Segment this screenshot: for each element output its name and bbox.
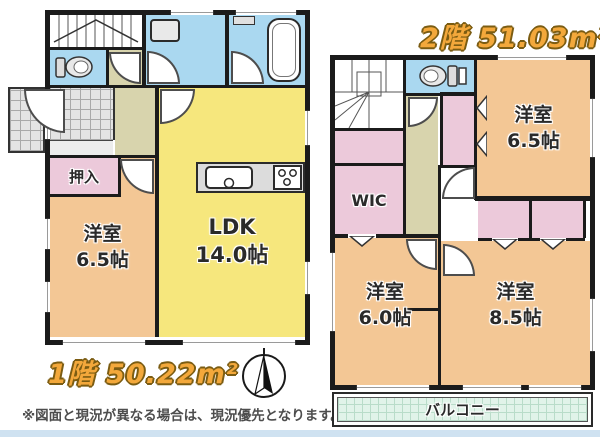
closet-2f-small: [335, 131, 403, 163]
yoshitsu-1f-label: 洋室 6.5帖: [50, 222, 155, 273]
floor2-title: 2階 51.03m²: [420, 16, 600, 55]
window-marker: [182, 340, 296, 345]
yoshitsu-85-label: 洋室 8.5帖: [441, 280, 590, 331]
window-marker: [590, 98, 595, 158]
floorplan-image: 押入 洋室 6.5帖 LDK 14.0帖 1階 50.22m² ※図面と現況が異…: [0, 0, 600, 437]
yoshitsu-60-label: 洋室 6.0帖: [335, 280, 435, 331]
wall-segment: [155, 88, 159, 337]
disclaimer-text: ※図面と現況が異なる場合は、現況優先となります。: [22, 404, 344, 424]
door-chevron: [492, 239, 518, 251]
wall-segment: [50, 47, 142, 50]
window-marker: [590, 298, 595, 352]
balcony-door-marker: [528, 385, 582, 390]
closet-2f-tall: [443, 95, 474, 165]
stairs-treads-icon: [50, 15, 142, 47]
door-chevron: [349, 236, 375, 248]
kitchen-counter: [196, 162, 305, 193]
stairs-treads-icon: [335, 60, 403, 128]
oshiire-label: 押入: [50, 167, 118, 187]
wall-segment: [475, 196, 590, 201]
window-marker: [235, 10, 297, 15]
washing-machine-icon: [149, 18, 183, 46]
window-marker: [45, 281, 50, 313]
ldk-label: LDK 14.0帖: [163, 213, 301, 270]
room-toilet-1f: [50, 50, 106, 85]
room-toilet-2f: [406, 60, 476, 93]
wall-segment: [335, 163, 403, 166]
bottom-border-strip: [0, 430, 600, 437]
bath-counter: [233, 16, 255, 25]
floor1-title: 1階 50.22m²: [48, 352, 239, 391]
yoshitsu-65-2f-label: 洋室 6.5帖: [477, 103, 590, 154]
window-marker: [62, 340, 146, 345]
wic-label: WIC: [335, 190, 403, 212]
wall-segment: [583, 201, 586, 238]
genkan-step: [50, 140, 113, 155]
balcony-door-marker: [462, 385, 522, 390]
door-chevron: [540, 239, 566, 251]
wall-segment: [225, 15, 229, 85]
wall-segment: [440, 92, 477, 95]
room-stairs-2f: [335, 60, 403, 128]
wall-segment: [50, 155, 155, 158]
wall-segment: [50, 194, 121, 197]
hallway-1f: [115, 88, 155, 158]
compass-icon: [237, 346, 291, 400]
toilet-icon: [50, 50, 106, 85]
balcony-label: バルコニー: [332, 400, 593, 420]
wall-segment: [440, 92, 443, 168]
room-stairs-1f: [50, 15, 142, 47]
bathtub-icon: [267, 18, 301, 82]
window-marker: [305, 261, 310, 295]
toilet-icon: [406, 60, 476, 93]
wall-segment: [403, 60, 406, 235]
window-marker: [170, 10, 214, 15]
wall-segment: [335, 128, 403, 131]
wall-segment: [50, 85, 305, 88]
wall-segment: [142, 15, 146, 85]
window-marker: [497, 55, 567, 60]
wall-segment: [529, 201, 532, 238]
window-marker: [305, 110, 310, 146]
wall-segment: [438, 165, 441, 385]
kitchen-sink-icon: [198, 164, 303, 191]
balcony-door-marker: [356, 385, 430, 390]
wall-segment: [113, 88, 115, 140]
